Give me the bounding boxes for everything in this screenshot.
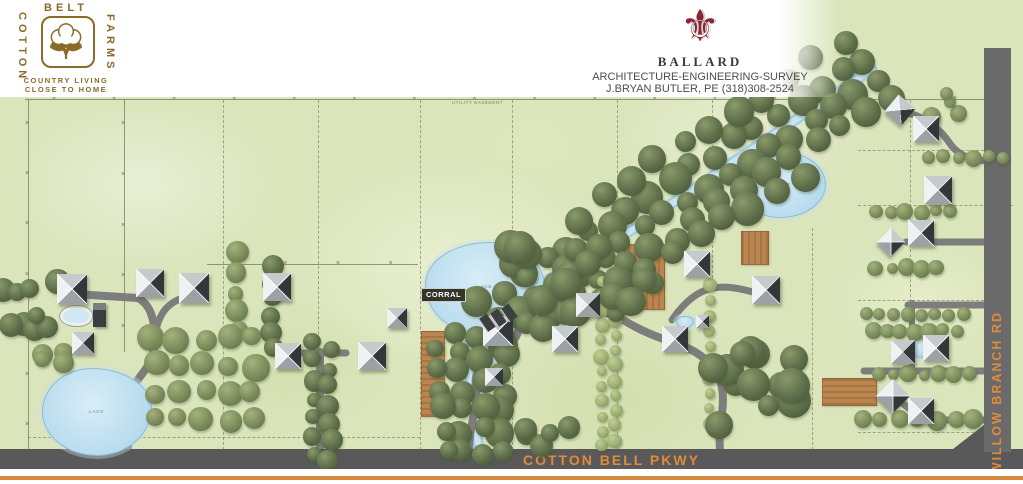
logo-tagline-line1: COUNTRY LIVING <box>14 76 118 85</box>
tree <box>430 393 456 419</box>
tree <box>983 150 995 162</box>
site-plan: COTTON BELL PKWY WILLOW BRANCH RD CORRAL… <box>0 0 1023 484</box>
tree <box>597 412 608 423</box>
tree <box>867 261 882 276</box>
header: BELT COTTON FARMS COUNTRY LIVING CLOSE T… <box>0 0 840 97</box>
ballard-contact: J.BRYAN BUTLER, PE (318)308-2524 <box>592 83 808 95</box>
tree <box>218 324 243 349</box>
tree <box>899 365 917 383</box>
tree <box>948 411 965 428</box>
tree <box>242 327 260 345</box>
tree <box>243 407 265 429</box>
tree <box>688 220 715 247</box>
house-roof <box>57 274 87 304</box>
tree <box>950 105 967 122</box>
house-roof <box>136 269 164 297</box>
tree <box>617 166 646 195</box>
tree <box>611 330 622 341</box>
tree <box>943 204 957 218</box>
house-roof <box>908 220 934 246</box>
tree <box>517 267 537 287</box>
tree <box>872 412 887 427</box>
tree <box>323 341 340 358</box>
tree <box>764 178 790 204</box>
tree <box>922 151 935 164</box>
tree <box>220 410 242 432</box>
tree <box>168 408 186 426</box>
house-roof <box>908 398 934 424</box>
tree <box>705 411 733 439</box>
lake-label: LAKE <box>89 410 104 415</box>
tree <box>20 279 39 298</box>
logo-tagline-line2: CLOSE TO HOME <box>14 85 118 94</box>
tree <box>703 278 717 292</box>
tree <box>928 308 940 320</box>
tree <box>705 295 716 306</box>
tree <box>167 380 190 403</box>
tree <box>426 340 443 357</box>
tree <box>724 96 754 126</box>
ballard-services: ARCHITECTURE-ENGINEERING-SURVEY <box>592 71 808 83</box>
tree <box>475 417 495 437</box>
house-roof <box>924 176 952 204</box>
tree <box>962 366 977 381</box>
tree <box>444 322 466 344</box>
house-roof <box>891 340 915 364</box>
tree <box>901 307 915 321</box>
cotton-belt-farms-logo: BELT COTTON FARMS COUNTRY LIVING CLOSE T… <box>14 2 118 94</box>
logo-word-farms: FARMS <box>104 14 116 73</box>
tree <box>137 324 164 351</box>
house-roof <box>662 326 688 352</box>
tree <box>472 444 493 465</box>
tree <box>930 205 941 216</box>
tree <box>851 97 881 127</box>
tree <box>169 355 190 376</box>
tree <box>34 351 50 367</box>
road-label-willow-branch: WILLOW BRANCH RD <box>990 311 1004 474</box>
house-roof <box>275 343 301 369</box>
fleur-de-lis-icon: ⚜ <box>592 0 808 54</box>
tree <box>226 262 247 283</box>
tree <box>0 313 23 337</box>
tree <box>698 353 728 383</box>
tree <box>493 441 513 461</box>
house-roof <box>913 116 939 142</box>
tree <box>774 368 810 404</box>
tree <box>806 127 831 152</box>
tree <box>940 87 954 101</box>
ballard-name: BALLARD <box>592 54 808 70</box>
house-roof <box>485 368 503 386</box>
tree <box>730 341 755 366</box>
logo-word-belt: BELT <box>44 2 88 14</box>
tree <box>575 250 601 276</box>
tree <box>239 381 260 402</box>
road-label-cotton-bell-pkwy: COTTON BELL PKWY <box>523 452 700 468</box>
tree <box>592 182 617 207</box>
tree <box>196 330 217 351</box>
house-roof <box>684 251 710 277</box>
house-roof <box>358 342 386 370</box>
tree <box>829 115 850 136</box>
tree <box>791 163 820 192</box>
tree <box>226 241 249 264</box>
tree <box>541 424 559 442</box>
house-roof <box>387 308 407 328</box>
tree <box>218 357 238 377</box>
tree <box>144 350 170 376</box>
easement-label: UTILITY EASEMENT <box>452 101 503 105</box>
tree <box>318 375 337 394</box>
tree <box>595 439 607 451</box>
house-roof <box>179 273 209 303</box>
tree <box>928 260 943 275</box>
tree <box>437 422 456 441</box>
house-roof <box>923 335 949 361</box>
cotton-boll-icon <box>41 16 95 68</box>
tree <box>504 231 536 263</box>
tree <box>936 149 950 163</box>
tree <box>945 366 962 383</box>
house-roof <box>696 315 709 328</box>
tree <box>197 380 216 399</box>
tree <box>608 418 620 430</box>
tree <box>638 145 665 172</box>
tree <box>610 404 623 417</box>
house-roof <box>263 273 291 301</box>
logo-word-cotton: COTTON <box>16 12 28 82</box>
corral-label: CORRAL <box>421 288 466 302</box>
tree <box>610 345 621 356</box>
willow-branch-road: WILLOW BRANCH RD <box>984 48 1011 452</box>
ballard-logo: ⚜ BALLARD ARCHITECTURE-ENGINEERING-SURVE… <box>592 0 808 95</box>
tree <box>53 353 73 373</box>
tree <box>303 427 321 445</box>
house-roof <box>752 276 780 304</box>
tree <box>951 325 964 338</box>
outbuilding <box>93 303 106 327</box>
tree <box>919 370 930 381</box>
swimming-pool <box>60 306 92 326</box>
tree <box>965 150 982 167</box>
tree <box>427 358 446 377</box>
tree <box>303 333 320 350</box>
tree <box>558 416 580 438</box>
house-roof <box>576 293 600 317</box>
tree <box>705 388 715 398</box>
tree <box>887 308 900 321</box>
tree <box>607 374 622 389</box>
tree <box>188 407 212 431</box>
tree <box>225 299 248 322</box>
house-roof <box>72 332 94 354</box>
house-roof <box>552 326 578 352</box>
tree <box>145 385 165 405</box>
tree <box>616 287 646 317</box>
tree <box>731 192 764 225</box>
tree <box>190 351 214 375</box>
tree <box>891 410 909 428</box>
tree <box>873 308 885 320</box>
tree <box>242 354 269 381</box>
tree <box>514 418 536 440</box>
bottom-orange-rule <box>0 476 1023 480</box>
